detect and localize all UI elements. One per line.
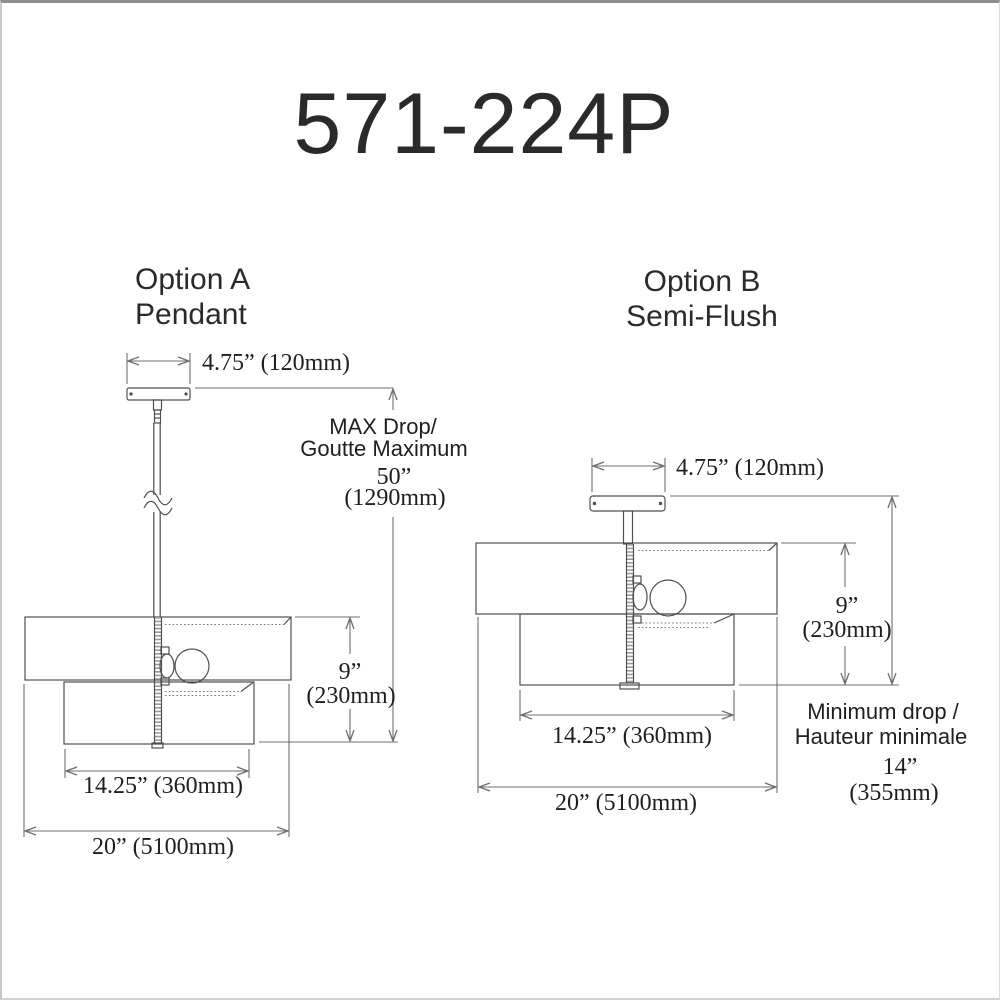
finial [620, 683, 639, 689]
socket-collar [633, 616, 641, 623]
shade-width-value: 14.25” (360mm) [552, 723, 712, 749]
canopy-screw-icon [659, 502, 662, 505]
pendant-stem [154, 400, 162, 410]
option-a-dimensions: 4.75” (120mm) MAX Drop/ Goutte Maximum 5… [24, 350, 468, 860]
canopy-screw-icon [184, 392, 187, 395]
socket-collar [161, 647, 169, 654]
semiflush-canopy [590, 496, 665, 511]
canopy-screw-icon [129, 392, 132, 395]
upper-shade-rim-corner [284, 617, 291, 625]
upper-shade-rim-corner [769, 543, 777, 551]
max-drop-value-mm: (1290mm) [344, 485, 445, 511]
lower-shade [64, 682, 254, 744]
option-b-dimensions: 4.75” (120mm) Minimum drop / Hauteur min… [478, 455, 967, 816]
option-a-fixture-drawing [25, 388, 291, 748]
semiflush-stem [624, 511, 633, 544]
lamp-socket [160, 654, 174, 678]
lower-shade-rim-corner [714, 615, 733, 624]
rod-coupler [155, 410, 161, 423]
shade-height-value-mm: (230mm) [802, 617, 891, 643]
canopy-width-value: 4.75” (120mm) [676, 455, 824, 481]
upper-shade [25, 617, 291, 680]
overall-width-value: 20” (5100mm) [555, 790, 697, 816]
min-drop-value-mm: (355mm) [849, 780, 938, 806]
canopy-width-value: 4.75” (120mm) [202, 350, 350, 376]
overall-width-value: 20” (5100mm) [92, 834, 234, 860]
socket-collar [633, 576, 641, 583]
min-drop-label-en: Minimum drop / [807, 699, 959, 724]
light-bulb [650, 580, 686, 616]
light-bulb [175, 649, 209, 683]
shade-height-value-in: 9” [339, 659, 362, 685]
shade-width-value: 14.25” (360mm) [83, 773, 243, 799]
lower-shade-rim-corner [241, 683, 253, 692]
option-b-fixture-drawing [476, 496, 777, 689]
pendant-canopy [127, 388, 190, 400]
min-drop-value-in: 14” [883, 754, 918, 780]
shade-height-value-mm: (230mm) [306, 683, 395, 709]
shade-height-value-in: 9” [836, 593, 859, 619]
max-drop-label-fr: Goutte Maximum [300, 436, 468, 461]
line-drawing: 4.75” (120mm) MAX Drop/ Goutte Maximum 5… [2, 3, 1000, 1000]
lamp-socket [633, 584, 647, 610]
min-drop-label-fr: Hauteur minimale [795, 724, 967, 749]
canopy-screw-icon [593, 502, 596, 505]
spec-sheet: 571-224P Option A Pendant Option B Semi-… [0, 0, 1000, 1000]
